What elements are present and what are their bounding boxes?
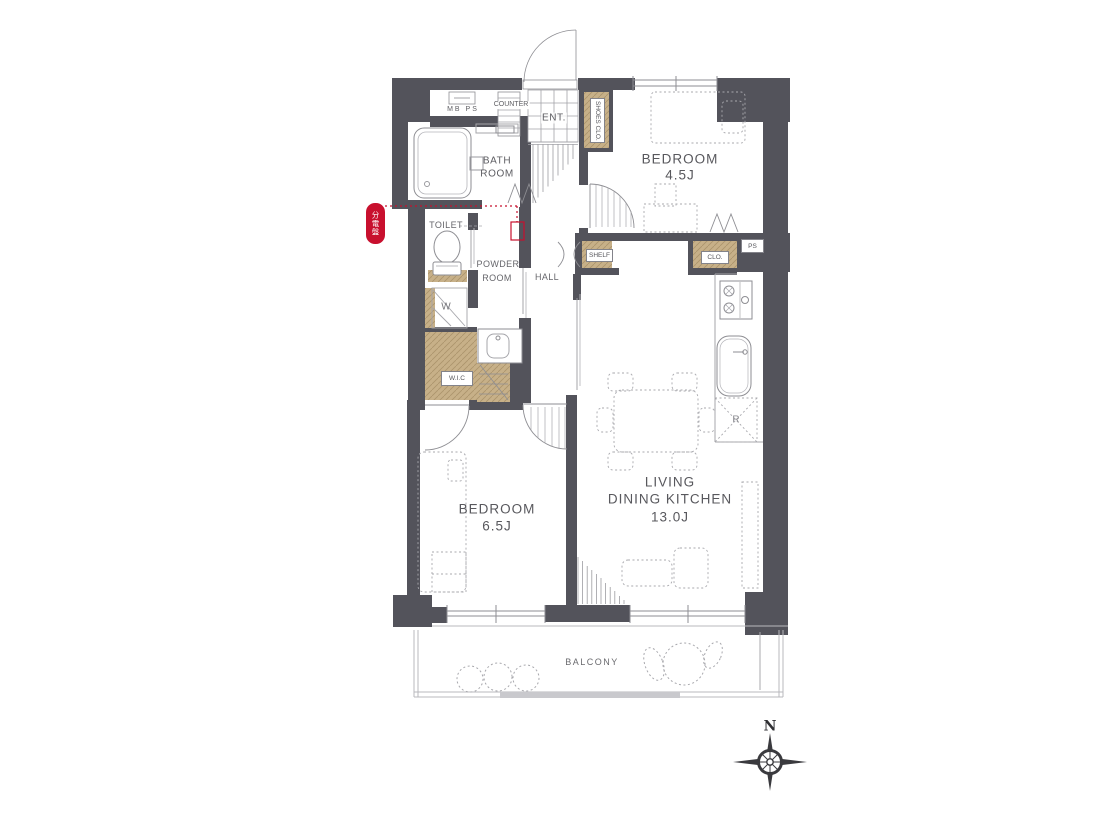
label-hall: HALL [535, 273, 559, 283]
label-bath-line2: ROOM [480, 169, 514, 180]
label-compass-north: N [764, 719, 777, 734]
floor-plan: BEDROOM 4.5J BEDROOM 6.5J LIVING DINING … [0, 0, 1100, 825]
label-washer: W [441, 302, 450, 313]
vanity-icon [478, 329, 522, 363]
label-counter: COUNTER [493, 101, 530, 109]
label-ldk-line2: DINING KITCHEN [608, 493, 732, 508]
balcony-chair [640, 639, 726, 685]
label-shoes-clo: SHOES CLO. [590, 98, 605, 143]
stove-icon [720, 281, 752, 319]
label-bedroom1-size: 4.5J [665, 169, 695, 184]
label-powder-line1: POWDER [477, 260, 520, 270]
ent-step-hatch [533, 144, 573, 203]
ldk-window-hatch [578, 557, 624, 604]
label-powder-line2: ROOM [482, 274, 512, 284]
label-ldk-size: 13.0J [651, 511, 689, 526]
distribution-board-badge: 分電盤 [366, 203, 385, 244]
toilet-icon [433, 231, 461, 275]
label-bedroom2-name: BEDROOM [459, 503, 536, 518]
label-wic: W.I.C [441, 371, 473, 386]
label-clo: CLO. [701, 251, 729, 264]
floor-plan-drawing [0, 0, 1100, 825]
label-bedroom2-size: 6.5J [482, 520, 512, 535]
label-toilet: TOILET [429, 221, 463, 231]
label-ent: ENT. [541, 113, 567, 124]
label-mb-ps: MB PS [447, 106, 479, 114]
label-ldk-line1: LIVING [645, 476, 695, 491]
sink-icon [717, 336, 751, 396]
label-fridge: R [732, 415, 739, 426]
label-ps: PS [741, 239, 764, 253]
balcony-plants [457, 663, 539, 692]
label-bedroom1-name: BEDROOM [642, 153, 719, 168]
label-shelf: SHELF [586, 249, 613, 262]
label-balcony: BALCONY [565, 658, 619, 668]
compass-icon [733, 733, 807, 791]
label-bath-line1: BATH [483, 156, 511, 167]
